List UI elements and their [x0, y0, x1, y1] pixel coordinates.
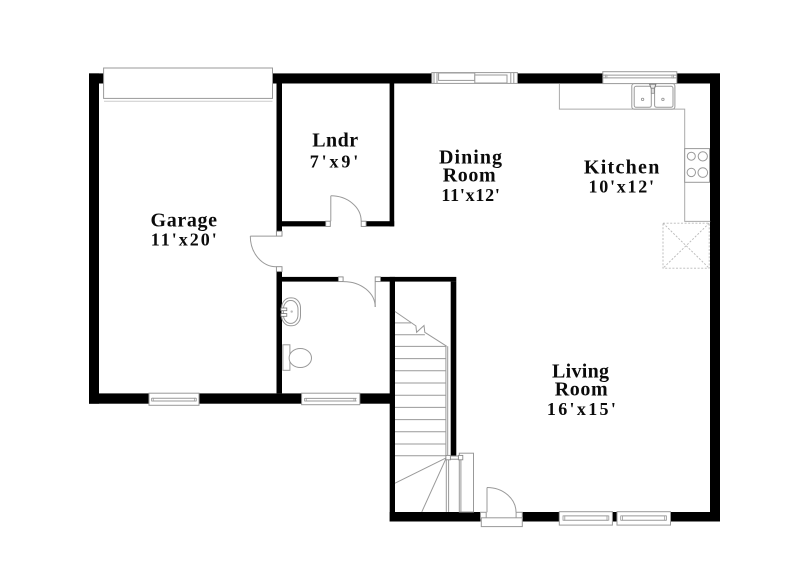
- svg-text:Room: Room: [555, 379, 608, 401]
- svg-text:Room: Room: [443, 165, 496, 187]
- svg-text:16'x15': 16'x15': [547, 399, 616, 419]
- svg-text:11'x12': 11'x12': [441, 185, 499, 205]
- svg-text:Kitchen: Kitchen: [584, 157, 660, 179]
- svg-text:7'x9': 7'x9': [310, 151, 359, 171]
- svg-text:Garage: Garage: [151, 209, 218, 231]
- svg-text:Lndr: Lndr: [312, 130, 358, 152]
- svg-text:10'x12': 10'x12': [589, 177, 655, 197]
- svg-text:11'x20': 11'x20': [151, 230, 217, 250]
